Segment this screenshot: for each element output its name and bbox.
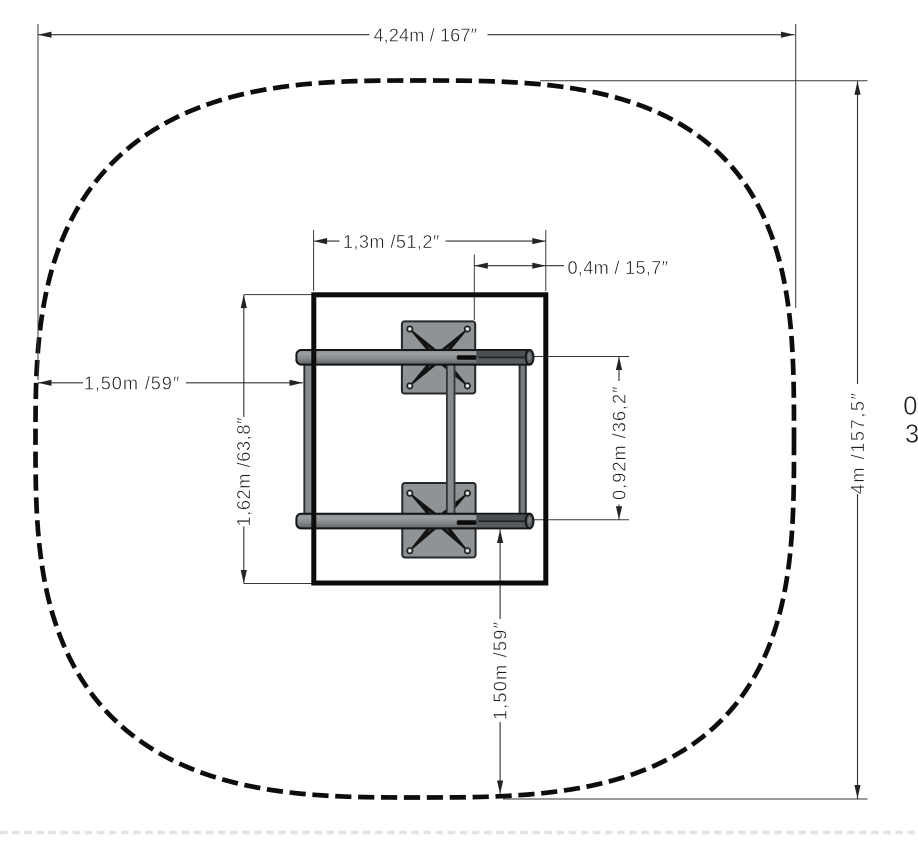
svg-text:1,3m /51,2″: 1,3m /51,2″	[343, 232, 440, 252]
svg-text:4m /157,5″: 4m /157,5″	[848, 391, 868, 494]
svg-text:0,92m /36,2″: 0,92m /36,2″	[609, 385, 629, 500]
svg-text:1,50m /59″: 1,50m /59″	[491, 621, 511, 720]
svg-text:0,4m / 15,7″: 0,4m / 15,7″	[568, 258, 669, 278]
svg-text:4,24m / 167″: 4,24m / 167″	[373, 26, 477, 46]
svg-text:3.: 3.	[905, 421, 918, 449]
svg-text:1,62m /63,8″: 1,62m /63,8″	[234, 417, 254, 527]
svg-text:0,: 0,	[903, 393, 918, 421]
svg-text:1,50m /59″: 1,50m /59″	[84, 374, 180, 394]
